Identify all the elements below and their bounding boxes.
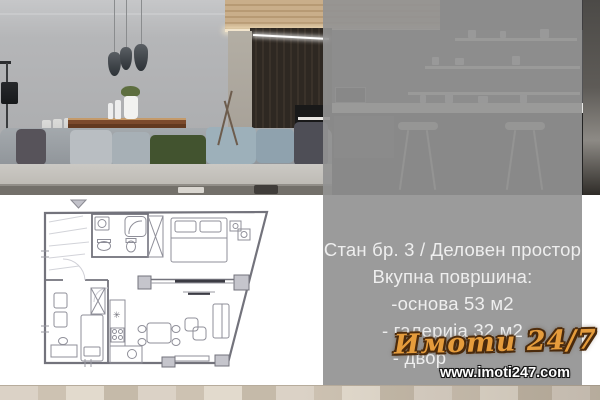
blue-gray-pillow xyxy=(206,127,256,164)
gray-pillow xyxy=(112,132,150,167)
entrance-marker xyxy=(71,200,86,208)
floor-lamp-shade xyxy=(1,82,18,104)
listing-area-base: -основа 53 м2 xyxy=(323,290,582,317)
floor-books xyxy=(178,187,204,193)
website-url: www.imoti247.com xyxy=(440,365,570,381)
table-bottle xyxy=(115,100,121,119)
sofa-seat xyxy=(0,164,332,186)
blue-gray-pillow xyxy=(256,129,294,163)
pendant-cord xyxy=(141,0,142,45)
floor-shadow xyxy=(0,186,332,195)
pendant-lamp xyxy=(134,44,148,71)
pendant-lamp xyxy=(120,47,132,70)
floor-object xyxy=(254,185,278,194)
table-bottle xyxy=(108,103,113,119)
wood-floor-shade xyxy=(300,385,600,400)
listing-title: Стан бр. 3 / Деловен простор xyxy=(323,236,582,263)
sofa xyxy=(0,126,332,195)
listing-subtitle: Вкупна површина: xyxy=(323,263,582,290)
dark-pillow xyxy=(16,129,46,165)
pendant-cord xyxy=(114,0,115,53)
stove-symbol: ✳ xyxy=(113,310,121,320)
pendant-cord xyxy=(126,0,127,48)
imoti247-logo: Имоти 24/7 xyxy=(394,324,598,360)
stone-accent-wall xyxy=(583,0,600,195)
floor-plan: ✳ xyxy=(25,196,290,382)
real-estate-ad: ✳ Стан бр. 3 / Деловен простор Вкупна по… xyxy=(0,0,600,400)
gray-pillow xyxy=(70,130,112,167)
white-vase xyxy=(124,96,138,119)
